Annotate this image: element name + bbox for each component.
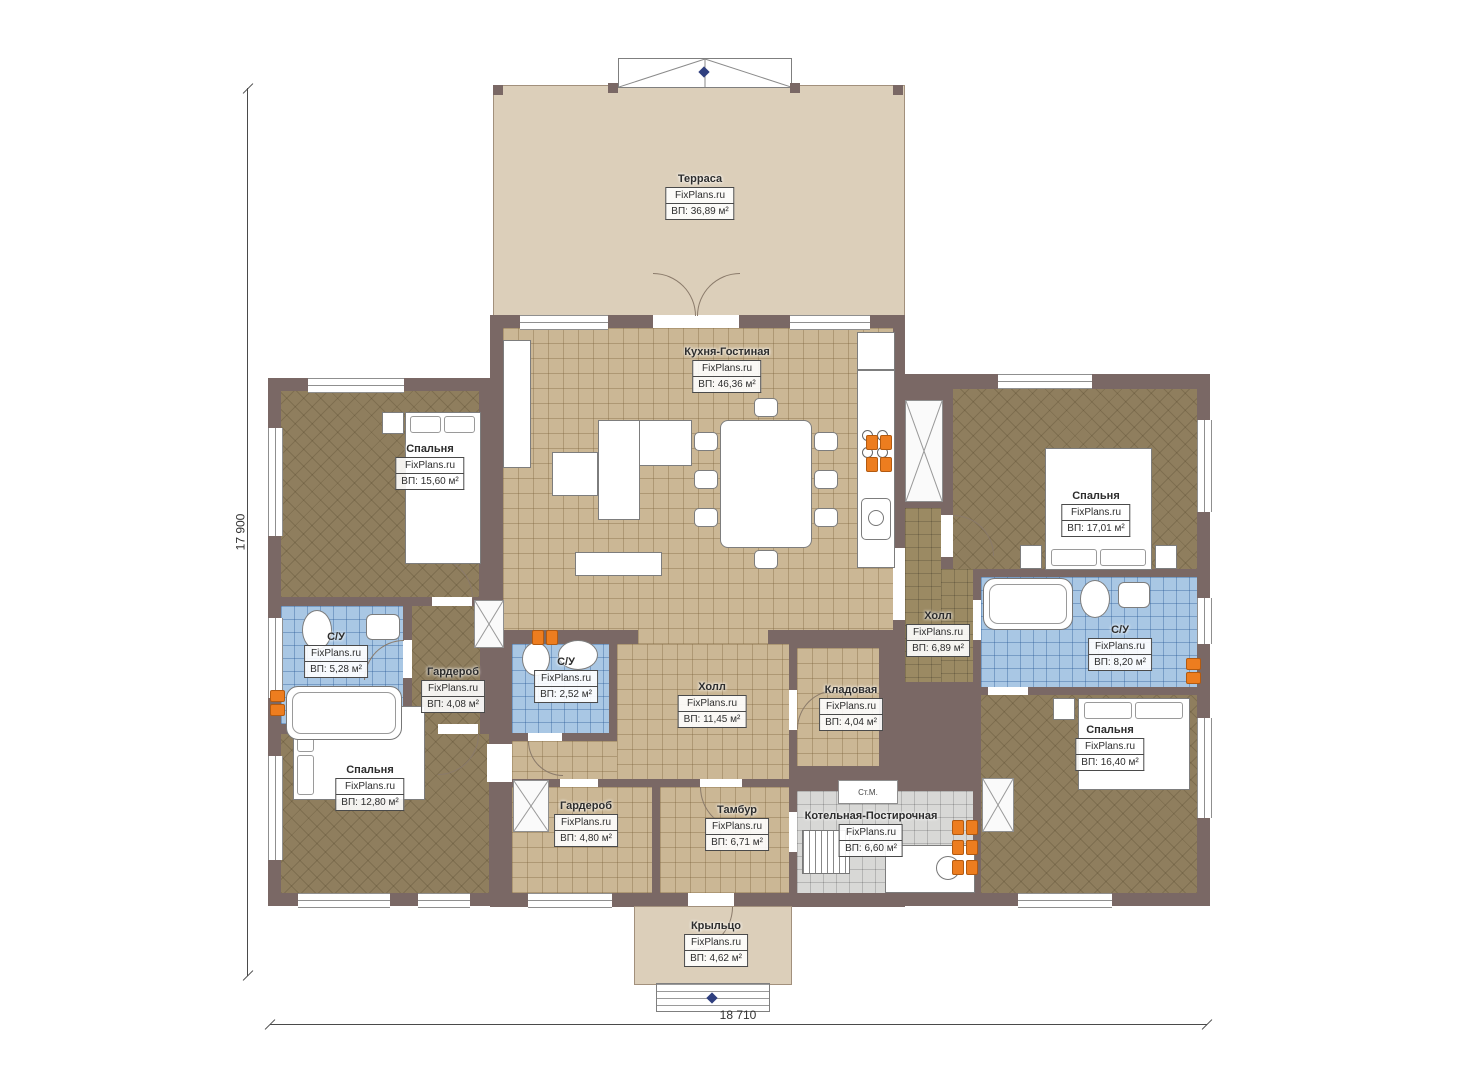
- room-name: Спальня: [395, 443, 464, 455]
- chair: [694, 470, 718, 489]
- vent-shaft: [474, 600, 504, 648]
- entry-door-opening: [688, 893, 734, 906]
- radiator: [952, 840, 978, 855]
- area-label: ВП: 6,60 м²: [839, 841, 903, 857]
- nightstand: [382, 412, 404, 434]
- vent-shaft: [982, 778, 1014, 832]
- brand-label: FixPlans.ru: [335, 778, 404, 795]
- brand-label: FixPlans.ru: [705, 818, 769, 835]
- tv-stand: [575, 552, 662, 576]
- area-label: ВП: 46,36 м²: [692, 377, 761, 393]
- brand-label: FixPlans.ru: [1075, 738, 1144, 755]
- door-opening: [973, 600, 981, 640]
- brand-label: FixPlans.ru: [678, 695, 747, 712]
- chair: [814, 432, 838, 451]
- pillow: [410, 416, 441, 433]
- room-name: Гардероб: [554, 800, 618, 812]
- room-name: Спальня: [1061, 490, 1130, 502]
- area-label: ВП: 36,89 м²: [665, 204, 734, 220]
- window: [790, 315, 870, 330]
- area-label: ВП: 6,71 м²: [705, 835, 769, 851]
- area-label: ВП: 12,80 м²: [335, 795, 404, 811]
- window: [520, 315, 608, 330]
- room-label-bathroom-center: С/У FixPlans.ru ВП: 2,52 м²: [534, 656, 598, 703]
- brand-label: FixPlans.ru: [554, 814, 618, 831]
- pillow: [444, 416, 475, 433]
- brand-label: FixPlans.ru: [665, 187, 734, 204]
- brand-label: FixPlans.ru: [819, 698, 883, 715]
- area-label: ВП: 6,89 м²: [906, 641, 970, 657]
- room-label-porch: Крыльцо FixPlans.ru ВП: 4,62 м²: [684, 920, 748, 967]
- brand-label: FixPlans.ru: [421, 680, 485, 697]
- brand-label: FixPlans.ru: [839, 824, 903, 841]
- room-label-wardrobe-bottom: Гардероб FixPlans.ru ВП: 4,80 м²: [554, 800, 618, 847]
- room-name: Гардероб: [421, 666, 485, 678]
- area-label: ВП: 4,80 м²: [554, 831, 618, 847]
- window: [268, 618, 283, 698]
- pillow: [1100, 549, 1146, 566]
- room-label-bedroom-tl: Спальня FixPlans.ru ВП: 15,60 м²: [395, 443, 464, 490]
- area-label: ВП: 11,45 м²: [678, 712, 747, 728]
- toilet: [1080, 580, 1110, 618]
- terrace-post: [608, 83, 618, 93]
- dimension-tick: [243, 970, 254, 981]
- area-label: ВП: 15,60 м²: [395, 474, 464, 490]
- dimension-height: 17 900: [233, 514, 247, 551]
- room-name: Кухня-Гостиная: [684, 346, 770, 358]
- pillow: [297, 755, 314, 795]
- window: [268, 756, 283, 860]
- bathroom-sink: [1118, 582, 1150, 608]
- door-opening: [438, 724, 478, 734]
- radiator: [866, 457, 892, 472]
- washer-niche: Ст.М.: [838, 780, 898, 804]
- window: [418, 893, 470, 908]
- chair: [814, 470, 838, 489]
- room-name: Холл: [906, 610, 970, 622]
- radiator: [1186, 658, 1201, 684]
- terrace-door-opening: [653, 315, 739, 328]
- door-opening: [560, 779, 598, 787]
- sofa-chaise: [598, 420, 640, 520]
- room-label-wardrobe-left: Гардероб FixPlans.ru ВП: 4,08 м²: [421, 666, 485, 713]
- brand-label: FixPlans.ru: [534, 670, 598, 687]
- brand-label: FixPlans.ru: [684, 934, 748, 951]
- door-opening: [403, 640, 412, 678]
- pillow: [1051, 549, 1097, 566]
- brand-label: FixPlans.ru: [1088, 638, 1152, 655]
- area-label: ВП: 4,08 м²: [421, 697, 485, 713]
- room-name: С/У: [1088, 624, 1152, 636]
- room-label-tambour: Тамбур FixPlans.ru ВП: 6,71 м²: [705, 804, 769, 851]
- door-opening: [789, 812, 797, 852]
- window: [1197, 718, 1212, 818]
- fridge: [857, 332, 895, 370]
- room-name: Спальня: [335, 764, 404, 776]
- room-name: Спальня: [1075, 724, 1144, 736]
- brand-label: FixPlans.ru: [304, 645, 368, 662]
- door-opening: [528, 733, 562, 741]
- brand-label: FixPlans.ru: [906, 624, 970, 641]
- pillow: [1135, 702, 1183, 719]
- brand-label: FixPlans.ru: [1061, 504, 1130, 521]
- room-name: Котельная-Постирочная: [805, 810, 938, 822]
- door-opening: [700, 779, 742, 787]
- terrace-post: [893, 85, 903, 95]
- kitchen-hall-opening: [638, 628, 768, 644]
- chair: [814, 508, 838, 527]
- chair: [754, 398, 778, 417]
- coffee-table: [552, 452, 598, 496]
- door-opening: [487, 744, 512, 782]
- room-label-pantry: Кладовая FixPlans.ru ВП: 4,04 м²: [819, 684, 883, 731]
- room-label-kitchen-living: Кухня-Гостиная FixPlans.ru ВП: 46,36 м²: [684, 346, 770, 393]
- room-name: С/У: [534, 656, 598, 668]
- chair: [754, 550, 778, 569]
- window: [298, 893, 390, 908]
- bathtub: [983, 578, 1073, 630]
- radiator: [866, 435, 892, 450]
- room-label-bathroom-left: С/У FixPlans.ru ВП: 5,28 м²: [304, 631, 368, 678]
- room-label-hall-right: Холл FixPlans.ru ВП: 6,89 м²: [906, 610, 970, 657]
- window: [1018, 893, 1112, 908]
- chair: [694, 508, 718, 527]
- radiator: [952, 820, 978, 835]
- door-opening: [432, 597, 472, 606]
- pillow: [1084, 702, 1132, 719]
- dining-table: [720, 420, 812, 548]
- closet: [503, 340, 531, 468]
- vent-shaft: [513, 780, 549, 832]
- floor-plan: Ст.М. Терраса FixPlans.ru ВП: 36,89 м² К…: [0, 0, 1474, 1080]
- room-name: Кладовая: [819, 684, 883, 696]
- door-opening: [941, 515, 953, 557]
- terrace-post: [790, 83, 800, 93]
- window: [1197, 598, 1212, 644]
- area-label: ВП: 16,40 м²: [1075, 755, 1144, 771]
- area-label: ВП: 17,01 м²: [1061, 521, 1130, 537]
- window: [998, 374, 1092, 389]
- sink-basin: [868, 510, 884, 526]
- radiator: [270, 690, 285, 716]
- room-name: Терраса: [665, 173, 734, 185]
- room-label-hall-center: Холл FixPlans.ru ВП: 11,45 м²: [678, 681, 747, 728]
- nightstand: [1053, 698, 1075, 720]
- room-name: С/У: [304, 631, 368, 643]
- area-label: ВП: 4,62 м²: [684, 951, 748, 967]
- radiator: [532, 630, 558, 645]
- window: [268, 428, 283, 536]
- door-opening: [789, 690, 797, 730]
- terrace-post: [493, 85, 503, 95]
- room-label-bedroom-br: Спальня FixPlans.ru ВП: 16,40 м²: [1075, 724, 1144, 771]
- washer-label: Ст.М.: [858, 788, 878, 797]
- area-label: ВП: 4,04 м²: [819, 715, 883, 731]
- window: [308, 378, 404, 393]
- dimension-line-horizontal: [270, 1024, 1207, 1025]
- room-name: Тамбур: [705, 804, 769, 816]
- window: [1197, 420, 1212, 512]
- radiator: [952, 860, 978, 875]
- area-label: ВП: 2,52 м²: [534, 687, 598, 703]
- room-name: Холл: [678, 681, 747, 693]
- brand-label: FixPlans.ru: [692, 360, 761, 377]
- chair: [694, 432, 718, 451]
- door-opening: [988, 687, 1028, 695]
- area-label: ВП: 5,28 м²: [304, 662, 368, 678]
- window: [528, 893, 612, 908]
- room-label-boiler-laundry: Котельная-Постирочная FixPlans.ru ВП: 6,…: [805, 810, 938, 857]
- vent-shaft: [905, 400, 943, 502]
- dimension-tick: [243, 83, 254, 94]
- dimension-width: 18 710: [720, 1008, 757, 1022]
- room-label-bathroom-right: С/У FixPlans.ru ВП: 8,20 м²: [1088, 624, 1152, 671]
- nightstand: [1020, 545, 1042, 569]
- brand-label: FixPlans.ru: [395, 457, 464, 474]
- bathtub: [286, 686, 402, 740]
- room-label-bedroom-tr: Спальня FixPlans.ru ВП: 17,01 м²: [1061, 490, 1130, 537]
- room-label-terrace: Терраса FixPlans.ru ВП: 36,89 м²: [665, 173, 734, 220]
- room-label-bedroom-bl: Спальня FixPlans.ru ВП: 12,80 м²: [335, 764, 404, 811]
- room-name: Крыльцо: [684, 920, 748, 932]
- area-label: ВП: 8,20 м²: [1088, 655, 1152, 671]
- nightstand: [1155, 545, 1177, 569]
- bathroom-sink: [366, 614, 400, 640]
